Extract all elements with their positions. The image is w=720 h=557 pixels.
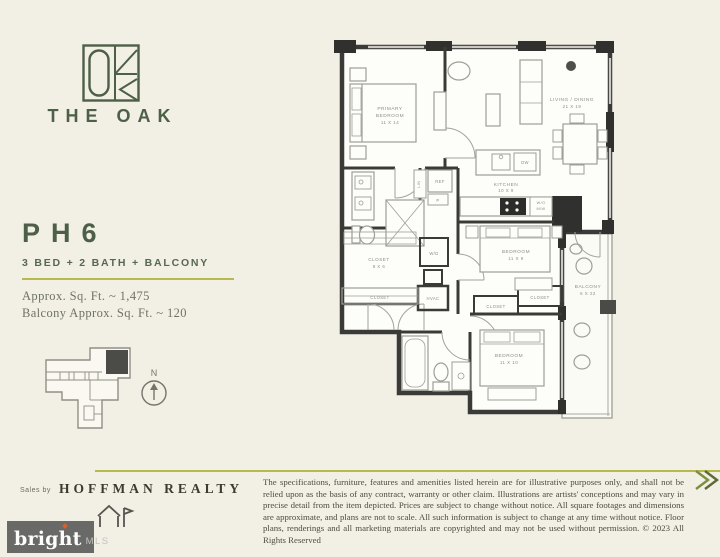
label-linen: LIN (417, 180, 421, 187)
label-wd: W/D (429, 251, 438, 256)
logo-letter-o (90, 51, 109, 96)
svg-text:BALCONY: BALCONY (575, 284, 602, 290)
the-oak-logo-monogram (82, 44, 140, 102)
bedroom3-furniture (480, 330, 544, 400)
bright-mls-watermark: bright MLS (7, 521, 94, 553)
brokerage-name: HOFFMAN REALTY (59, 481, 243, 497)
svg-text:11 X 10: 11 X 10 (500, 360, 518, 365)
house-icon (96, 503, 136, 527)
svg-text:11 X 9: 11 X 9 (508, 256, 523, 261)
svg-text:PRIMARY: PRIMARY (377, 106, 403, 112)
label-closet-b: CLOSET (486, 304, 505, 309)
svg-text:10 X 9: 10 X 9 (498, 188, 514, 193)
svg-text:BEDROOM: BEDROOM (376, 113, 404, 119)
north-label: N (151, 368, 158, 378)
svg-text:11 X 14: 11 X 14 (381, 120, 399, 125)
unit-subtitle: 3 BED + 2 BATH + BALCONY (22, 257, 209, 269)
toilet2 (434, 363, 448, 381)
watermark-mls-text: MLS (86, 536, 110, 547)
logo-letter-k (115, 46, 137, 100)
svg-text:6 X 22: 6 X 22 (580, 291, 596, 296)
toilet2-tank (433, 382, 449, 391)
sales-by-label: Sales by (20, 487, 51, 494)
divider-line (22, 278, 234, 280)
plant (566, 61, 576, 71)
brand-name: THE OAK (40, 106, 185, 127)
label-closet-a: CLOSET (530, 295, 549, 300)
planter (600, 300, 616, 314)
keyplan-unit-marker (106, 350, 128, 374)
label-hvac: HVAC (427, 296, 440, 301)
footer-chevron-ornament (694, 469, 720, 493)
north-arrow: N (142, 368, 166, 405)
svg-text:BEDROOM: BEDROOM (502, 249, 530, 255)
disclaimer-text: The specifications, furniture, features … (263, 477, 684, 547)
label-closet-corridor: CLOSET (370, 295, 389, 300)
toilet (360, 226, 375, 244)
building-keyplan: N (32, 336, 177, 434)
label-wall-oven: W/O (537, 201, 546, 205)
svg-text:CLOSET: CLOSET (368, 257, 389, 262)
toilet-tank (352, 226, 360, 243)
footer-divider-line (95, 470, 720, 472)
balcony-sqft: Balcony Approx. Sq. Ft. ~ 120 (22, 306, 187, 321)
approx-sqft: Approx. Sq. Ft. ~ 1,475 (22, 289, 150, 304)
svg-text:LIVING / DINING: LIVING / DINING (550, 97, 594, 103)
label-ref: REF (435, 179, 445, 184)
svg-text:21 X 19: 21 X 19 (563, 104, 582, 109)
svg-text:BEDROOM: BEDROOM (495, 353, 523, 359)
floorplan-flyer: THE OAK PH6 3 BED + 2 BATH + BALCONY App… (0, 0, 720, 557)
label-microwave: M/W (536, 207, 545, 211)
label-pantry: P (436, 198, 439, 203)
watermark-brand-text: bright (14, 530, 82, 549)
floorplan-drawing: PRIMARY BEDROOM 11 X 14 LIVING / DINING … (330, 30, 670, 436)
svg-text:8 X 6: 8 X 6 (373, 264, 386, 269)
range (500, 198, 526, 215)
unit-number: PH6 (22, 218, 108, 249)
label-dw: DW (521, 160, 529, 165)
